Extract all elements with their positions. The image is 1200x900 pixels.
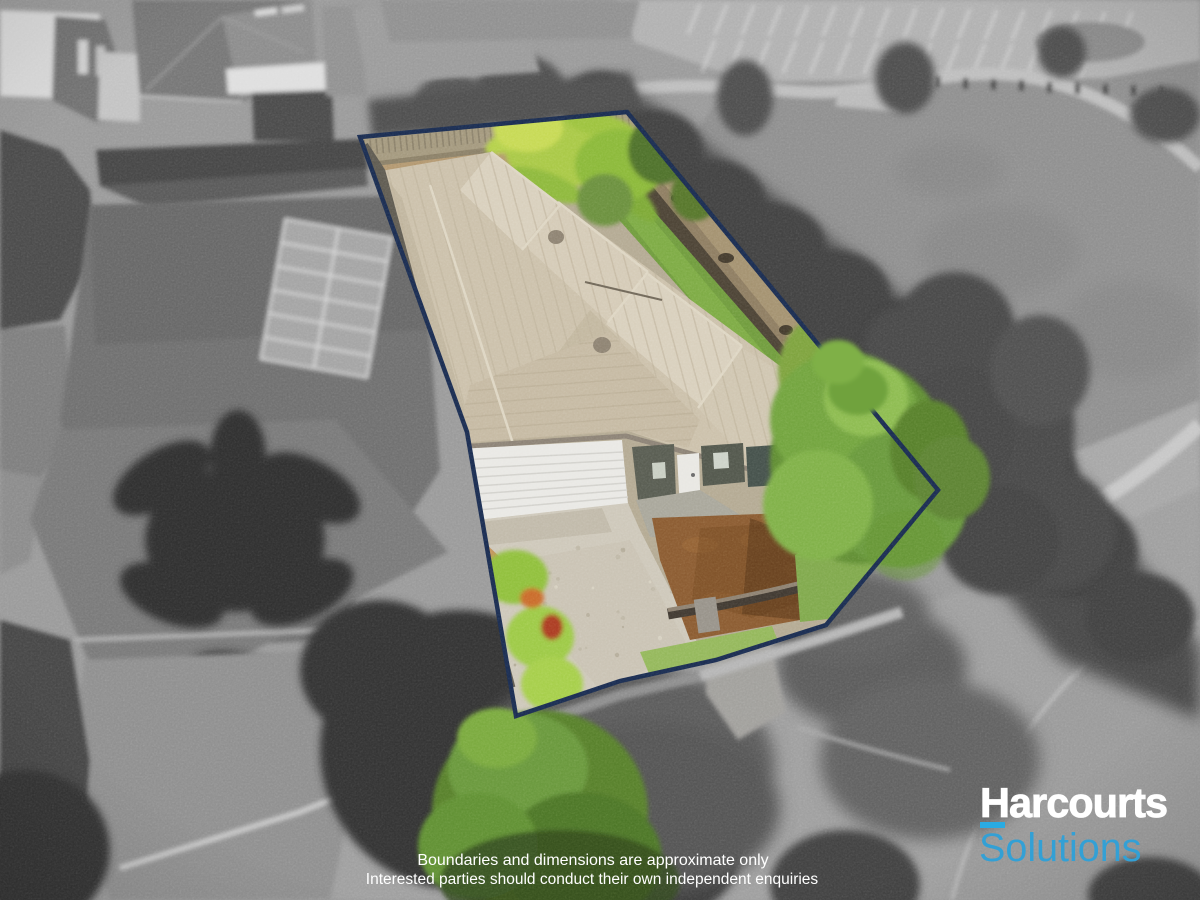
- svg-text:Harcourts: Harcourts: [980, 779, 1167, 826]
- svg-text:Boundaries and dimensions are: Boundaries and dimensions are approximat…: [417, 852, 768, 869]
- svg-text:Solutions: Solutions: [979, 826, 1142, 870]
- svg-text:Interested parties should cond: Interested parties should conduct their …: [366, 871, 819, 888]
